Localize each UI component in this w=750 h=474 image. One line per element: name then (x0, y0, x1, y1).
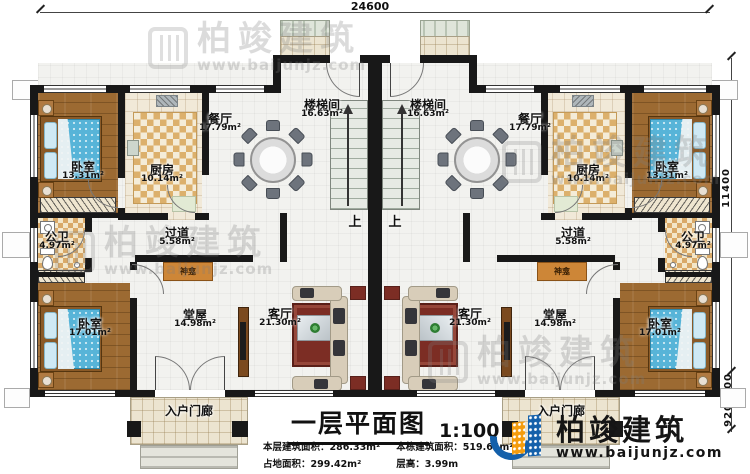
brand-name: 柏竣建筑 (556, 415, 723, 445)
room-area-living: 21.30m² (410, 318, 530, 328)
dining-chair (302, 153, 313, 167)
side-table-mat (350, 376, 366, 390)
pillow (693, 342, 706, 369)
kitchen-appliance (611, 140, 623, 156)
shrine-label: 神龛 (554, 266, 570, 277)
sofa-cushion (422, 379, 436, 389)
stove (572, 95, 594, 107)
sofa-cushion (314, 379, 328, 389)
wall-segment (360, 55, 368, 63)
stairs-direction-line (402, 114, 404, 206)
toilet-bowl (42, 256, 53, 270)
nightstand (696, 182, 712, 198)
floor-drain (670, 262, 676, 268)
room-area-corridor: 5.58m² (513, 237, 633, 247)
dining-chair (438, 153, 449, 167)
window (216, 85, 264, 93)
wall-segment (382, 55, 390, 63)
stat-footprint-area: 占地面积：299.42m² (263, 456, 380, 470)
nightstand (38, 100, 54, 116)
porch-pillar (127, 421, 141, 437)
window (44, 85, 106, 93)
room-area-bathroom: 4.97m² (633, 241, 750, 251)
back-porch-steps (280, 20, 330, 37)
window (560, 85, 620, 93)
dining-table (454, 137, 500, 183)
sofa-cushion (333, 340, 345, 356)
brand-logo: 柏竣建筑 www.baijunjz.com (490, 412, 723, 464)
unit-left: 神龛 (30, 0, 368, 474)
dining-table (250, 137, 296, 183)
nightstand (696, 290, 712, 306)
room-area-stairwell: 16.63m² (262, 109, 382, 119)
dining-chair (470, 188, 484, 199)
sofa-cushion (405, 340, 417, 356)
exterior-pad (720, 388, 746, 408)
window (45, 390, 115, 397)
shrine-label: 神龛 (180, 266, 196, 277)
back-porch-tile (280, 36, 330, 57)
window (255, 390, 333, 397)
wall-segment (85, 258, 92, 272)
floor-plan: 24600 11400 600 920 (0, 0, 750, 474)
room-area-bedroom-large: 17.01m² (600, 328, 720, 338)
wall-segment (541, 213, 555, 220)
nightstand (696, 100, 712, 116)
bed (646, 290, 712, 388)
shrine-table: 神龛 (537, 262, 587, 281)
wall-segment (195, 213, 209, 220)
logo-tower-blue (528, 415, 541, 457)
wall-segment (420, 55, 477, 63)
sofa-cushion (300, 288, 314, 298)
stat-floor-area: 本层建筑面积：286.33m² (263, 439, 380, 453)
window (486, 85, 534, 93)
back-porch-tile (420, 36, 470, 57)
wall-segment (582, 213, 632, 220)
wall-segment (38, 213, 118, 218)
sofa-top (408, 286, 458, 301)
side-table-mat (384, 376, 400, 390)
pillow (693, 122, 706, 149)
kitchen-appliance (127, 140, 139, 156)
wall-segment (118, 213, 168, 220)
stairs-direction-line (347, 114, 349, 206)
floor-drain (74, 262, 80, 268)
wall-segment (135, 255, 253, 262)
porch-pillar (232, 421, 248, 437)
room-area-stairwell: 16.63m² (368, 109, 488, 119)
nightstand (38, 182, 54, 198)
window (644, 85, 706, 93)
unit-right: 神龛 (382, 0, 720, 474)
room-area-kitchen: 10.14m² (528, 174, 648, 184)
wall-segment (665, 272, 712, 277)
window (635, 390, 705, 397)
pillow (44, 342, 57, 369)
side-table-mat (350, 286, 366, 300)
brand-logo-icon (490, 412, 548, 464)
plan-stats: 本层建筑面积：286.33m² 本栋建筑面积：519.64m² 占地面积：299… (263, 439, 514, 470)
brand-url: www.baijunjz.com (556, 445, 723, 461)
dining-chair (234, 153, 245, 167)
room-area-bedroom-large: 17.01m² (30, 328, 150, 338)
dining-chair (266, 188, 280, 199)
toilet-bowl (697, 256, 708, 270)
room-area-living: 21.30m² (220, 318, 340, 328)
room-area-kitchen: 10.14m² (102, 174, 222, 184)
exterior-pad (4, 388, 30, 408)
sofa-cushion (436, 288, 450, 298)
room-area-bathroom: 4.97m² (0, 241, 117, 251)
entry-porch-steps (140, 445, 238, 469)
stove (156, 95, 178, 107)
wall-segment (632, 213, 712, 218)
logo-tower-orange (512, 421, 525, 454)
wall-segment (463, 213, 470, 262)
nightstand (696, 372, 712, 388)
window (417, 390, 495, 397)
pillow (44, 122, 57, 149)
room-area-corridor: 5.58m² (117, 237, 237, 247)
room-label-entry-porch: 入户门廊 (129, 402, 249, 419)
back-porch-steps (420, 20, 470, 37)
shrine-table: 神龛 (163, 262, 213, 281)
dining-chair (506, 153, 517, 167)
wall-segment (497, 255, 615, 262)
stairs-up-label: 上 (295, 211, 415, 230)
window (130, 85, 190, 93)
wall-segment (658, 258, 665, 272)
nightstand (38, 372, 54, 388)
room-area-dining: 17.79m² (160, 123, 280, 133)
nightstand (38, 290, 54, 306)
side-table-mat (384, 286, 400, 300)
wall-segment (38, 272, 85, 277)
wall-segment (280, 213, 287, 262)
wall-segment (273, 55, 330, 63)
room-area-dining: 17.79m² (470, 123, 590, 133)
bed (38, 290, 104, 388)
